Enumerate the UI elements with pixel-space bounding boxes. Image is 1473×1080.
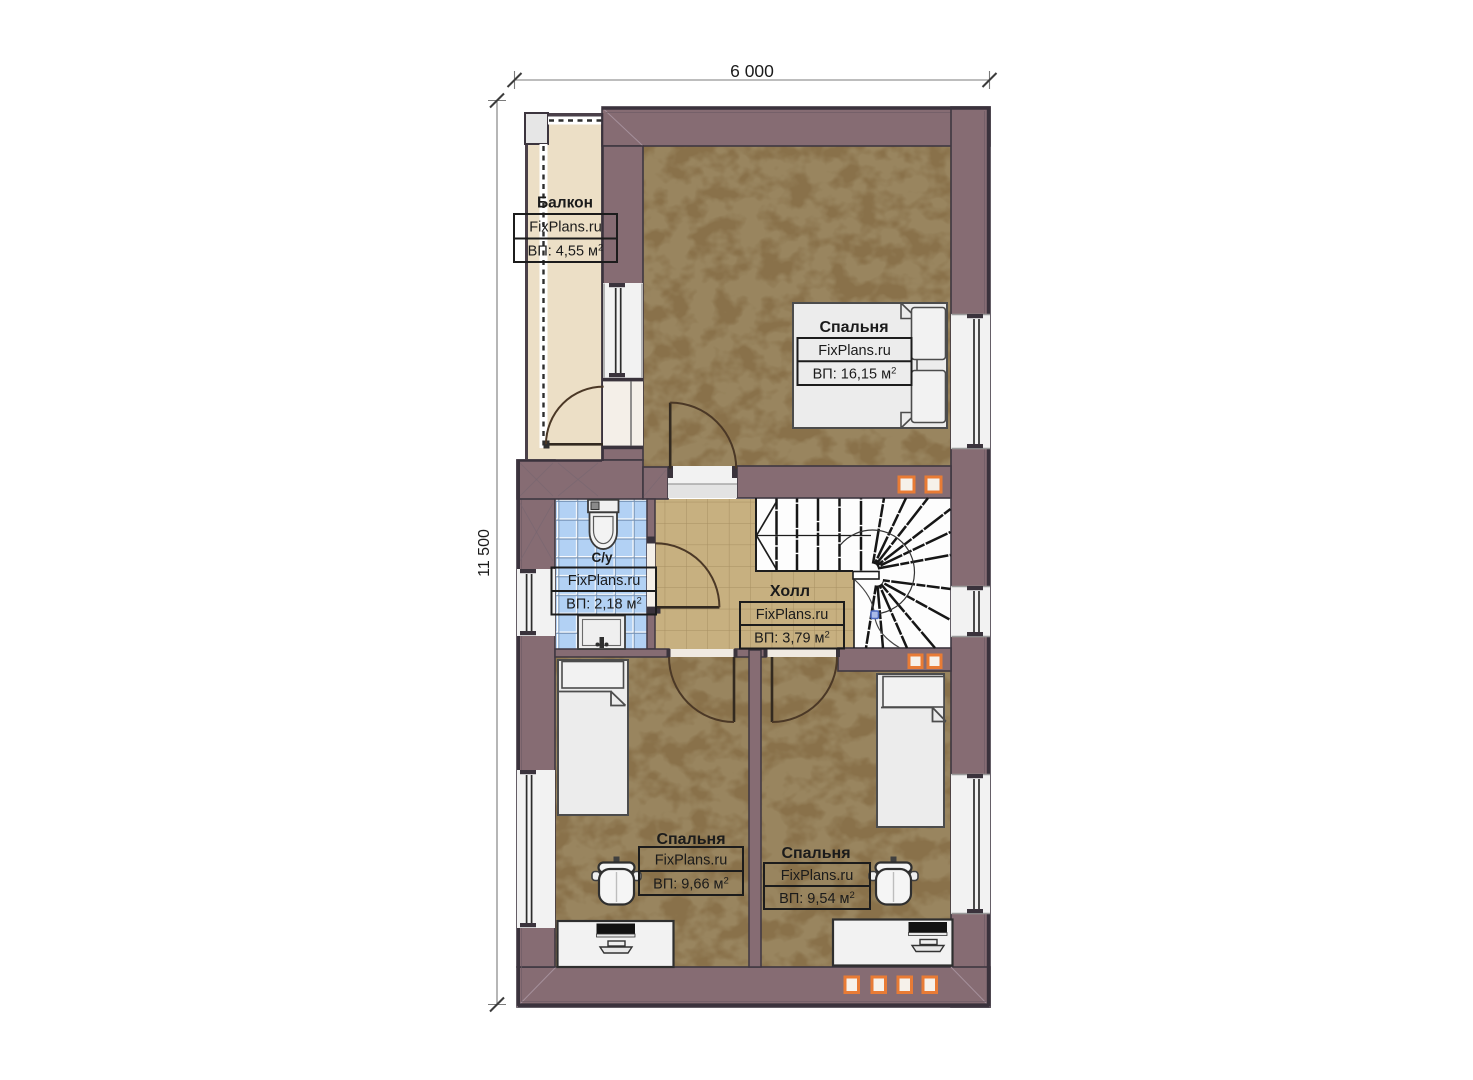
svg-text:ВП: 4,55 м2: ВП: 4,55 м2 bbox=[528, 243, 604, 260]
svg-text:FixPlans.ru: FixPlans.ru bbox=[655, 853, 728, 869]
svg-text:FixPlans.ru: FixPlans.ru bbox=[818, 343, 891, 359]
svg-text:FixPlans.ru: FixPlans.ru bbox=[756, 607, 829, 623]
svg-text:С/у: С/у bbox=[591, 550, 613, 565]
svg-text:FixPlans.ru: FixPlans.ru bbox=[568, 573, 641, 589]
svg-text:Холл: Холл bbox=[770, 583, 810, 600]
svg-text:Балкон: Балкон bbox=[537, 195, 593, 212]
svg-text:ВП: 2,18 м2: ВП: 2,18 м2 bbox=[566, 596, 642, 613]
svg-text:FixPlans.ru: FixPlans.ru bbox=[781, 868, 854, 884]
svg-text:Спальня: Спальня bbox=[819, 319, 888, 336]
svg-text:ВП: 9,66 м2: ВП: 9,66 м2 bbox=[653, 876, 729, 893]
svg-text:FixPlans.ru: FixPlans.ru bbox=[529, 220, 602, 236]
svg-text:11 500: 11 500 bbox=[476, 529, 493, 577]
svg-text:6 000: 6 000 bbox=[730, 61, 774, 81]
svg-text:ВП: 16,15 м2: ВП: 16,15 м2 bbox=[813, 366, 897, 383]
svg-text:ВП: 9,54 м2: ВП: 9,54 м2 bbox=[779, 890, 855, 907]
svg-text:Спальня: Спальня bbox=[656, 831, 725, 848]
svg-text:Спальня: Спальня bbox=[781, 845, 850, 862]
svg-text:ВП: 3,79 м2: ВП: 3,79 м2 bbox=[754, 630, 830, 647]
